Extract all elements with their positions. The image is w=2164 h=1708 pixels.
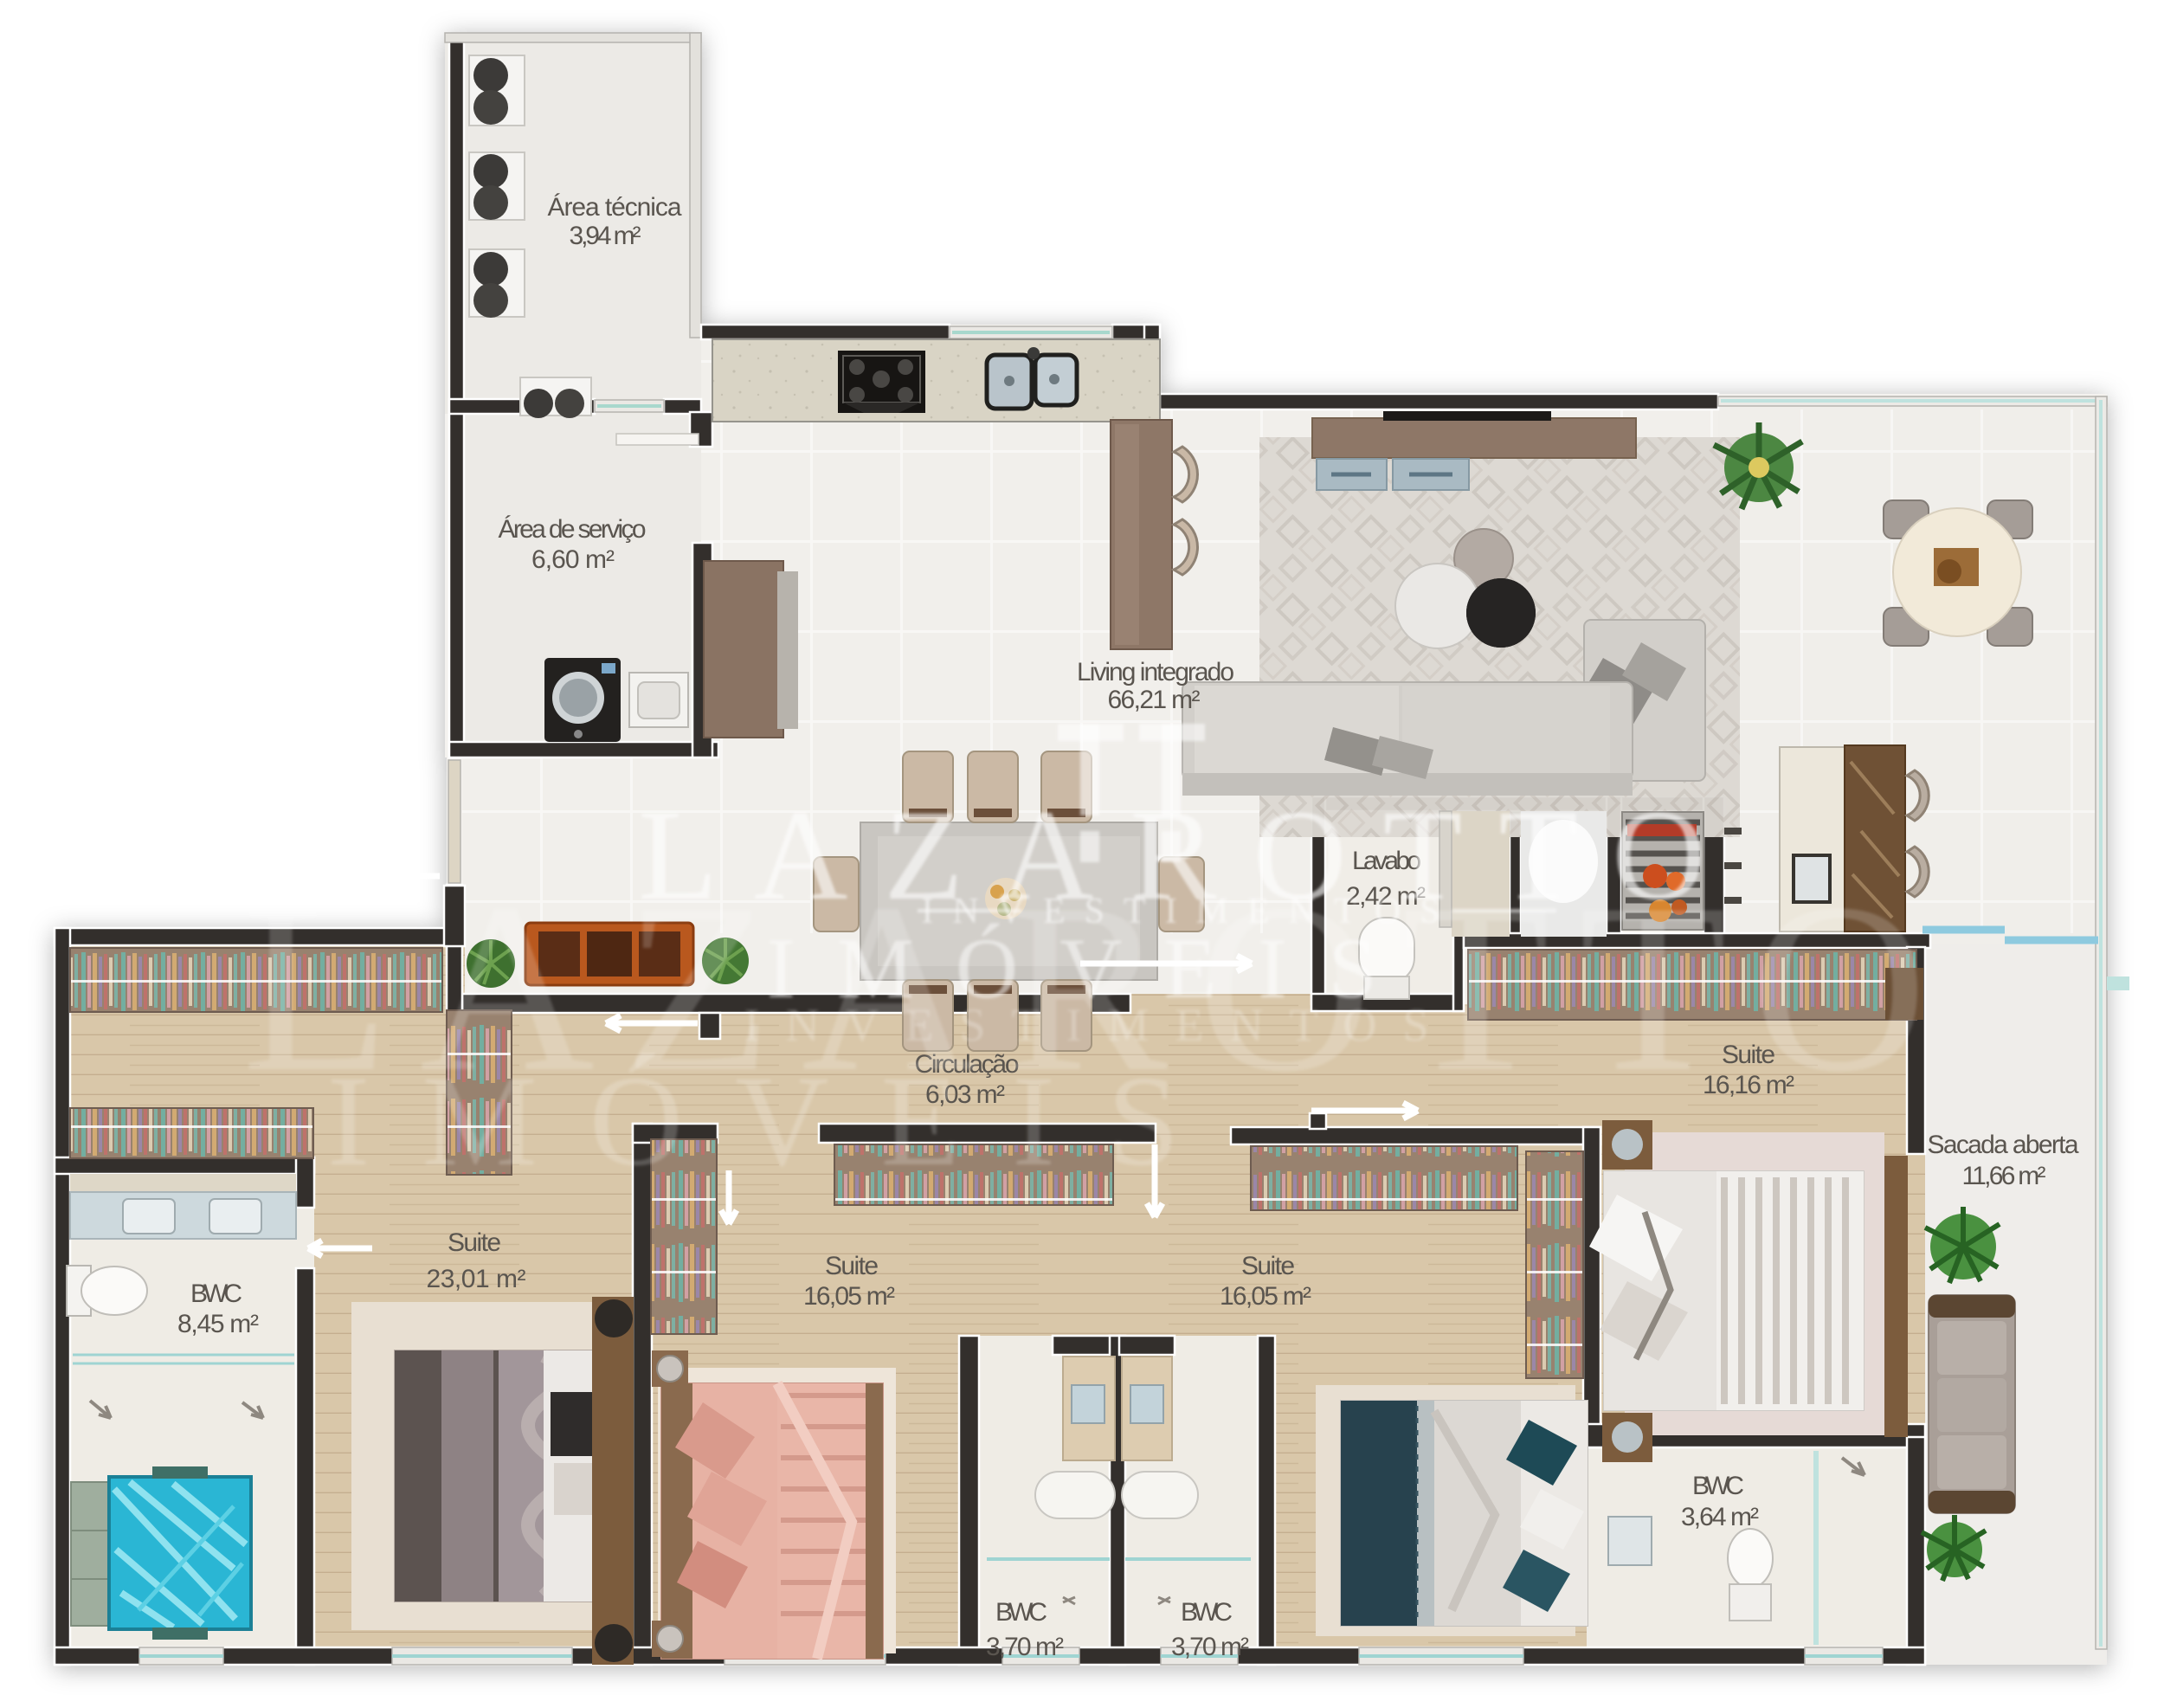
svg-text:Suite: Suite bbox=[825, 1252, 879, 1280]
svg-text:6,60 m²: 6,60 m² bbox=[531, 545, 615, 574]
svg-text:Suite: Suite bbox=[448, 1228, 501, 1257]
svg-text:23,01 m²: 23,01 m² bbox=[427, 1265, 526, 1293]
svg-text:Living integrado: Living integrado bbox=[1077, 658, 1234, 686]
svg-text:8,45 m²: 8,45 m² bbox=[177, 1310, 259, 1338]
svg-text:BWC: BWC bbox=[190, 1279, 242, 1308]
svg-text:11,66 m²: 11,66 m² bbox=[1962, 1162, 2046, 1190]
svg-text:IMÓVEIS: IMÓVEIS bbox=[327, 1049, 1232, 1193]
svg-text:3,64 m²: 3,64 m² bbox=[1681, 1503, 1759, 1531]
svg-text:Suite: Suite bbox=[1241, 1252, 1295, 1280]
svg-text:16,05 m²: 16,05 m² bbox=[803, 1282, 895, 1311]
svg-text:66,21 m²: 66,21 m² bbox=[1108, 686, 1201, 714]
svg-text:BWC: BWC bbox=[995, 1598, 1047, 1627]
svg-text:Área técnica: Área técnica bbox=[548, 193, 682, 222]
svg-text:Área de serviço: Área de serviço bbox=[499, 515, 647, 544]
svg-text:3,70 m²: 3,70 m² bbox=[986, 1633, 1064, 1661]
svg-text:3,94 m²: 3,94 m² bbox=[570, 222, 641, 250]
svg-text:Sacada aberta: Sacada aberta bbox=[1928, 1131, 2079, 1159]
svg-text:3,70 m²: 3,70 m² bbox=[1171, 1633, 1249, 1661]
svg-text:IMÓVEIS: IMÓVEIS bbox=[767, 920, 1419, 1016]
svg-text:BWC: BWC bbox=[1181, 1598, 1233, 1627]
svg-text:BWC: BWC bbox=[1692, 1472, 1744, 1500]
svg-text:16,05 m²: 16,05 m² bbox=[1220, 1282, 1311, 1311]
